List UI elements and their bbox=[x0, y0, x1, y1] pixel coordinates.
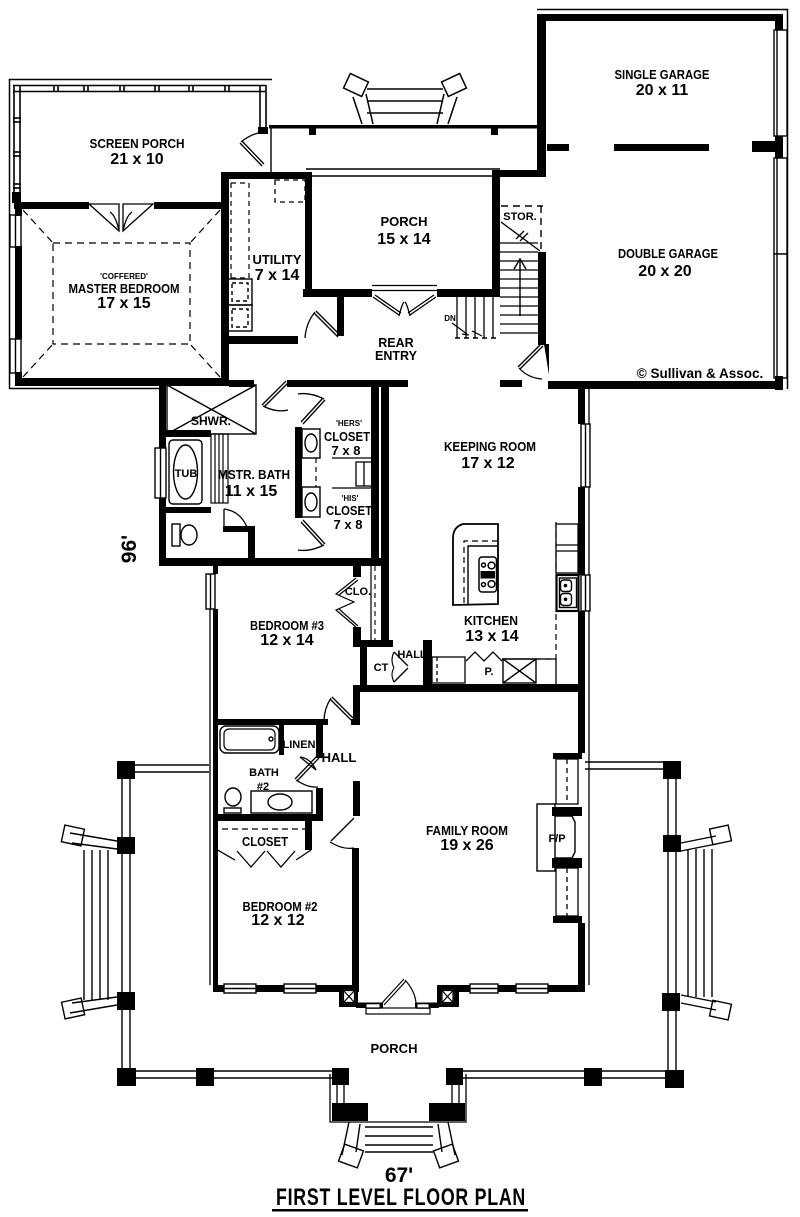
svg-text:BATH: BATH bbox=[249, 767, 279, 779]
svg-text:7 x 8: 7 x 8 bbox=[332, 443, 361, 458]
svg-text:'COFFERED': 'COFFERED' bbox=[100, 272, 148, 281]
svg-text:LINEN: LINEN bbox=[283, 739, 316, 751]
svg-text:#2: #2 bbox=[257, 781, 269, 793]
svg-text:REAR: REAR bbox=[378, 336, 413, 350]
svg-text:MSTR. BATH: MSTR. BATH bbox=[218, 467, 290, 482]
svg-text:17 x 15: 17 x 15 bbox=[97, 295, 150, 312]
svg-text:CT: CT bbox=[374, 662, 389, 674]
svg-text:19 x 26: 19 x 26 bbox=[440, 837, 493, 854]
svg-text:'HIS': 'HIS' bbox=[341, 494, 358, 503]
svg-text:SHWR.: SHWR. bbox=[191, 414, 231, 428]
svg-text:BEDROOM #3: BEDROOM #3 bbox=[250, 618, 324, 633]
svg-text:DN: DN bbox=[444, 314, 456, 323]
svg-text:13 x 14: 13 x 14 bbox=[465, 628, 518, 645]
svg-text:UTILITY: UTILITY bbox=[253, 252, 302, 267]
svg-text:CLO.: CLO. bbox=[345, 586, 371, 598]
svg-text:PORCH: PORCH bbox=[371, 1041, 418, 1056]
svg-text:96': 96' bbox=[118, 535, 141, 563]
svg-text:7 x 8: 7 x 8 bbox=[334, 517, 363, 532]
svg-text:TUB: TUB bbox=[175, 468, 198, 480]
svg-text:21 x 10: 21 x 10 bbox=[110, 151, 163, 168]
svg-text:MASTER BEDROOM: MASTER BEDROOM bbox=[69, 281, 180, 296]
svg-text:15 x 14: 15 x 14 bbox=[377, 231, 430, 248]
svg-text:HALL: HALL bbox=[322, 750, 357, 765]
svg-text:20 x 20: 20 x 20 bbox=[638, 263, 691, 280]
svg-text:FAMILY ROOM: FAMILY ROOM bbox=[426, 823, 508, 838]
svg-text:ENTRY: ENTRY bbox=[375, 349, 418, 363]
svg-text:DOUBLE GARAGE: DOUBLE GARAGE bbox=[618, 246, 718, 261]
svg-text:17 x 12: 17 x 12 bbox=[461, 455, 514, 472]
svg-text:20 x 11: 20 x 11 bbox=[636, 82, 689, 99]
svg-text:CLOSET: CLOSET bbox=[324, 429, 370, 444]
svg-text:PORCH: PORCH bbox=[381, 214, 428, 229]
svg-text:F/P: F/P bbox=[548, 833, 565, 845]
svg-text:7 x 14: 7 x 14 bbox=[255, 267, 300, 284]
svg-text:© Sullivan & Assoc.: © Sullivan & Assoc. bbox=[637, 366, 763, 381]
svg-text:P.: P. bbox=[485, 666, 494, 678]
svg-text:CLOSET: CLOSET bbox=[242, 834, 288, 849]
svg-text:12 x 12: 12 x 12 bbox=[251, 912, 304, 929]
svg-text:FIRST LEVEL FLOOR PLAN: FIRST LEVEL FLOOR PLAN bbox=[276, 1184, 526, 1211]
svg-text:11 x 15: 11 x 15 bbox=[225, 483, 278, 500]
svg-text:KEEPING ROOM: KEEPING ROOM bbox=[444, 439, 536, 454]
svg-text:SCREEN PORCH: SCREEN PORCH bbox=[90, 136, 185, 151]
svg-text:STOR.: STOR. bbox=[503, 211, 536, 223]
svg-text:HALL: HALL bbox=[397, 649, 427, 661]
svg-text:'HERS': 'HERS' bbox=[336, 419, 362, 428]
svg-text:12 x 14: 12 x 14 bbox=[260, 632, 313, 649]
svg-text:CLOSET: CLOSET bbox=[326, 503, 372, 518]
svg-text:SINGLE GARAGE: SINGLE GARAGE bbox=[615, 67, 710, 82]
svg-text:KITCHEN: KITCHEN bbox=[464, 613, 518, 628]
